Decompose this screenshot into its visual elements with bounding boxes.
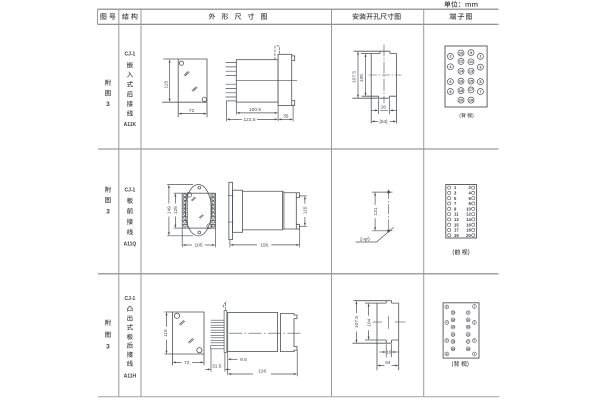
svg-text:107.5: 107.5 [351, 71, 357, 83]
svg-text:1: 1 [479, 55, 481, 59]
svg-text:3: 3 [106, 344, 110, 351]
svg-text:18: 18 [459, 89, 463, 93]
svg-text:13: 13 [454, 217, 459, 222]
svg-text:72: 72 [189, 108, 195, 114]
svg-text:20: 20 [452, 347, 455, 351]
svg-text:156: 156 [260, 243, 268, 249]
svg-text:15: 15 [454, 222, 459, 227]
svg-text:CJ-1: CJ-1 [124, 51, 135, 57]
svg-text:11: 11 [454, 212, 459, 217]
svg-text:16: 16 [386, 350, 392, 356]
svg-text:31.5: 31.5 [212, 364, 222, 370]
svg-text:149: 149 [167, 206, 173, 214]
svg-text:10: 10 [459, 51, 463, 55]
svg-text:122.5: 122.5 [243, 117, 255, 123]
svg-text:17: 17 [467, 340, 470, 344]
svg-text:CJ-1: CJ-1 [124, 296, 135, 302]
svg-text:126: 126 [258, 368, 266, 374]
svg-text:115: 115 [163, 329, 169, 337]
svg-text:A11K: A11K [124, 122, 137, 128]
svg-text:104: 104 [366, 318, 372, 326]
svg-text:5: 5 [479, 80, 481, 84]
svg-text:14: 14 [452, 325, 455, 329]
svg-text:6: 6 [449, 80, 451, 84]
svg-text:100.5: 100.5 [249, 107, 261, 113]
svg-text:17: 17 [469, 88, 473, 92]
svg-text:107.5: 107.5 [354, 316, 360, 328]
svg-text:13: 13 [469, 70, 473, 74]
svg-text:19: 19 [454, 233, 459, 238]
svg-text:10: 10 [466, 206, 471, 211]
svg-text:9: 9 [470, 51, 472, 55]
svg-text:105: 105 [359, 74, 365, 82]
svg-text:19: 19 [469, 98, 473, 102]
svg-text:2: 2 [449, 55, 451, 59]
svg-text:72: 72 [184, 360, 190, 366]
svg-text:115: 115 [303, 206, 309, 214]
svg-text:15: 15 [469, 79, 473, 83]
svg-text:125: 125 [173, 206, 179, 214]
svg-text:[64]: [64] [379, 119, 387, 125]
svg-text:2-φ5: 2-φ5 [360, 237, 370, 243]
svg-text:A11H: A11H [124, 374, 137, 380]
svg-text:18: 18 [452, 340, 455, 344]
svg-text:10: 10 [452, 311, 455, 315]
svg-text:14: 14 [466, 217, 471, 222]
svg-text:11: 11 [467, 318, 470, 322]
svg-text:7: 7 [479, 90, 481, 94]
svg-text:9.5: 9.5 [240, 357, 247, 363]
svg-text:35: 35 [283, 113, 289, 119]
svg-text:20: 20 [459, 98, 463, 102]
svg-text:16: 16 [452, 332, 455, 336]
svg-text:3: 3 [479, 65, 481, 69]
svg-text:12: 12 [452, 318, 455, 322]
svg-text:105: 105 [194, 243, 202, 249]
svg-text:131: 131 [373, 207, 379, 215]
svg-text:64: 64 [385, 360, 391, 366]
svg-text:20: 20 [466, 233, 471, 238]
svg-text:12: 12 [459, 60, 463, 64]
svg-text:A11Q: A11Q [124, 241, 137, 247]
svg-text:12: 12 [466, 212, 471, 217]
svg-text:19: 19 [467, 347, 470, 351]
svg-text:3: 3 [106, 208, 110, 215]
svg-text:11: 11 [469, 60, 473, 64]
svg-text:8: 8 [449, 90, 451, 94]
svg-text:115: 115 [163, 81, 169, 89]
svg-text:15: 15 [467, 332, 470, 336]
svg-text:3: 3 [106, 101, 110, 108]
svg-text:17: 17 [454, 228, 459, 233]
svg-text:13: 13 [467, 325, 470, 329]
svg-text:18: 18 [466, 228, 471, 233]
svg-text:16: 16 [459, 79, 463, 83]
svg-text:16: 16 [381, 104, 387, 110]
svg-text:16: 16 [466, 222, 471, 227]
svg-text:CJ-1: CJ-1 [124, 187, 135, 193]
